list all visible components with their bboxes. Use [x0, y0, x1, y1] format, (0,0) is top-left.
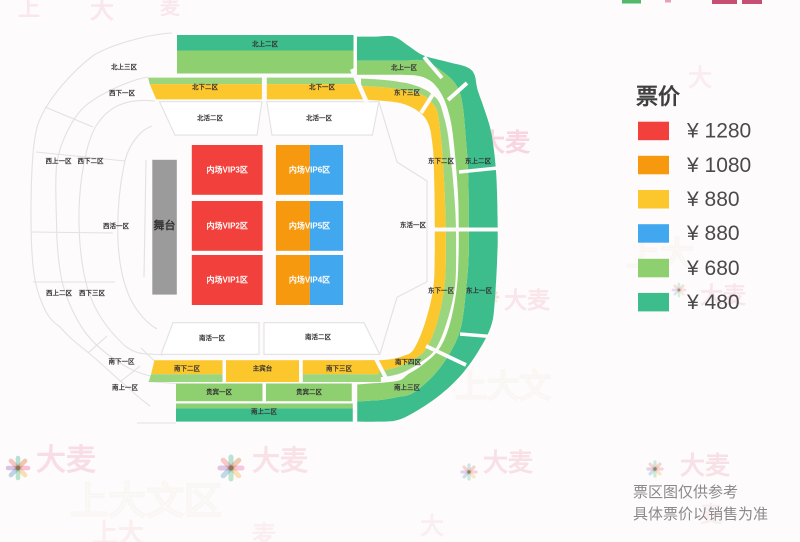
- svg-text:麦: 麦: [252, 522, 277, 542]
- svg-text:南上三区: 南上三区: [394, 383, 421, 392]
- svg-text:东活一区: 东活一区: [400, 220, 427, 229]
- svg-text:内场VIP2区: 内场VIP2区: [207, 220, 248, 230]
- svg-text:北下一区: 北下一区: [309, 82, 336, 91]
- svg-text:大麦: 大麦: [36, 444, 97, 477]
- svg-text:南上二区: 南上二区: [251, 407, 278, 416]
- svg-text:内场VIP5区: 内场VIP5区: [289, 220, 330, 230]
- svg-text:大麦: 大麦: [504, 287, 551, 313]
- svg-text:西上二区: 西上二区: [46, 288, 73, 297]
- svg-text:北上三区: 北上三区: [111, 62, 138, 71]
- svg-text:北上一区: 北上一区: [391, 63, 418, 72]
- svg-text:大麦: 大麦: [252, 445, 309, 476]
- svg-text:北上二区: 北上二区: [252, 39, 279, 48]
- svg-text:上大文区: 上大文区: [70, 481, 222, 523]
- svg-text:大麦: 大麦: [483, 449, 534, 477]
- svg-text:东下二区: 东下二区: [428, 156, 455, 165]
- svg-text:大: 大: [688, 65, 712, 92]
- svg-text:西活一区: 西活一区: [103, 221, 130, 230]
- svg-text:贵宾一区: 贵宾一区: [206, 387, 233, 396]
- svg-text:内场VIP4区: 内场VIP4区: [289, 275, 330, 285]
- svg-text:上: 上: [18, 0, 40, 21]
- svg-text:票价: 票价: [636, 84, 681, 109]
- svg-text:南活二区: 南活二区: [305, 332, 332, 341]
- svg-text:南下二区: 南下二区: [174, 364, 201, 373]
- svg-text:贵宾二区: 贵宾二区: [296, 387, 323, 396]
- svg-text:南上一区: 南上一区: [112, 382, 139, 391]
- svg-text:票区图仅供参考: 票区图仅供参考: [633, 484, 738, 501]
- svg-text:南下三区: 南下三区: [326, 364, 353, 373]
- svg-text:大: 大: [420, 513, 444, 540]
- svg-text:西下二区: 西下二区: [78, 157, 105, 165]
- svg-text:具体票价以销售为准: 具体票价以销售为准: [633, 506, 768, 523]
- svg-text:¥ 1280: ¥ 1280: [686, 120, 751, 143]
- svg-text:西下三区: 西下三区: [79, 289, 106, 297]
- svg-text:南下四区: 南下四区: [395, 357, 422, 366]
- svg-text:¥ 880: ¥ 880: [686, 222, 740, 245]
- svg-text:内场VIP6区: 内场VIP6区: [289, 164, 330, 174]
- svg-text:舞台: 舞台: [154, 218, 176, 232]
- svg-text:东下一区: 东下一区: [428, 286, 455, 295]
- svg-text:内场VIP3区: 内场VIP3区: [207, 164, 248, 174]
- svg-text:麦: 麦: [160, 0, 181, 19]
- svg-text:北活一区: 北活一区: [306, 113, 333, 122]
- svg-text:上大文: 上大文: [455, 368, 551, 404]
- svg-text:大: 大: [90, 0, 114, 24]
- svg-text:东上一区: 东上一区: [466, 286, 493, 295]
- svg-text:¥ 880: ¥ 880: [686, 188, 740, 211]
- svg-text:南活一区: 南活一区: [199, 333, 226, 342]
- svg-text:南下一区: 南下一区: [109, 357, 136, 366]
- svg-text:东下三区: 东下三区: [394, 88, 421, 97]
- svg-text:¥ 480: ¥ 480: [686, 291, 740, 314]
- svg-text:¥ 1080: ¥ 1080: [686, 154, 751, 177]
- svg-text:主宾台: 主宾台: [253, 364, 273, 373]
- svg-text:北下二区: 北下二区: [192, 82, 219, 91]
- svg-text:北活二区: 北活二区: [197, 113, 224, 122]
- svg-text:内场VIP1区: 内场VIP1区: [207, 275, 248, 285]
- svg-text:¥ 680: ¥ 680: [686, 257, 740, 280]
- svg-text:西上一区: 西上一区: [46, 156, 73, 165]
- svg-text:西下一区: 西下一区: [109, 89, 136, 97]
- svg-text:东上二区: 东上二区: [465, 156, 492, 165]
- svg-text:上大: 上大: [92, 518, 144, 542]
- svg-text:大麦: 大麦: [680, 452, 731, 480]
